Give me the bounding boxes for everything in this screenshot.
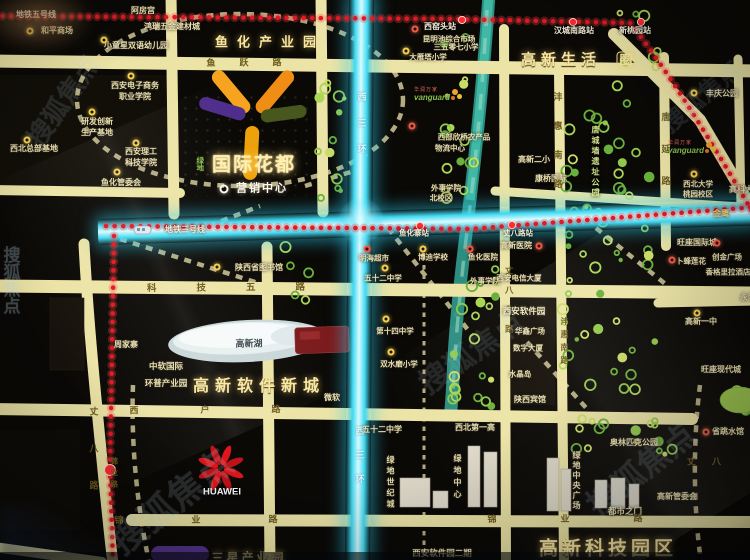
map-label: 省跳水馆: [712, 428, 744, 436]
map-label: 西北总部基地: [10, 145, 58, 153]
map-label: 永阳: [740, 294, 750, 302]
map-label: 物流中心: [435, 144, 465, 152]
board-bottom-edge: [0, 552, 750, 560]
poi-marker-red-icon: [714, 240, 721, 247]
poi-marker-yellow-icon: [388, 349, 395, 356]
marketing-center-ring-icon: [220, 185, 229, 194]
poi-marker-yellow-icon: [691, 90, 698, 97]
marketing-center-label: 营销中心: [236, 184, 288, 195]
poi-marker-red-icon: [412, 26, 419, 33]
map-label: 圈: [616, 52, 635, 69]
map-label: 高新一中: [685, 318, 717, 326]
vanguard-logo: 华润万家 vanguard: [414, 88, 450, 102]
poi-marker-yellow-icon: [694, 310, 701, 317]
poi-marker-yellow-icon: [128, 73, 135, 80]
poi-marker-red-icon: [364, 246, 371, 253]
poi-marker-yellow-icon: [382, 265, 389, 272]
map-label: 唐延路: [661, 112, 670, 208]
map-label: 丈八: [687, 458, 737, 467]
map-label: 新桃园站: [619, 27, 651, 35]
map-label: 高新二小: [518, 156, 550, 164]
map-label: 丰庆公园: [706, 90, 738, 98]
map-label: 三五零七小学: [434, 43, 479, 51]
vanguard-logo: 华润万家 vanguard: [668, 141, 704, 155]
poi-marker-yellow-icon: [383, 316, 390, 323]
vanguard-fruit-icon: [450, 89, 464, 103]
map-label: 西户路: [129, 405, 342, 416]
map-label: 微软: [324, 394, 340, 402]
vanguard-fruit-icon: [704, 142, 718, 156]
poi-marker-yellow-icon: [24, 137, 31, 144]
map-label: 桃园校区: [683, 190, 713, 198]
map-label: 香格里拉酒店: [706, 268, 750, 276]
map-label: 绿地中心: [453, 454, 461, 502]
logo-brand-greenland: 绿地: [196, 157, 204, 172]
map-label: 绿地中央广场: [572, 451, 580, 511]
map-label: 西安电子商务: [111, 82, 159, 90]
map-label: 西北大学: [683, 180, 713, 188]
map-label: 西北第一高: [455, 424, 495, 432]
map-label: 华鑫广场: [515, 327, 545, 335]
poi-marker-red-icon: [669, 257, 676, 264]
map-label: 奥林匹克公园: [610, 439, 658, 447]
map-label: 西部欣桥农产品: [438, 133, 491, 141]
map-label: 外事学院: [431, 184, 461, 192]
map-label: 锦业路: [487, 514, 706, 524]
map-label: 西安软件园: [503, 307, 546, 316]
lake-label: 高新湖: [235, 340, 262, 349]
map-label: 明海超市: [359, 254, 389, 262]
map-label: 周家寨: [114, 341, 138, 349]
poi-marker-red-icon: [467, 246, 474, 253]
map-label: 高新管委会: [657, 493, 697, 501]
poi-marker-yellow-icon: [101, 37, 108, 44]
map-label: 唐城墙遗址公园: [591, 125, 599, 199]
map-label: 环普产业园: [145, 379, 188, 388]
poi-marker-yellow-icon: [214, 264, 221, 271]
map-label: 创金广场: [712, 253, 742, 261]
map-label: 双水磨小学: [380, 360, 418, 368]
map-label: 鱼化管委会: [101, 179, 141, 187]
map-label: 水晶岛: [509, 370, 532, 378]
map-label: 西三环: [355, 426, 364, 498]
district-title-software-new-town: 高新软件新城: [193, 379, 325, 395]
map-label: 研发创新: [81, 118, 113, 126]
map-label: 高科大厦: [729, 186, 750, 194]
map-label: 高新医院: [500, 242, 532, 250]
map-label: 锦业路: [114, 515, 345, 525]
map-label: 数字大厦: [513, 344, 543, 352]
map-label: 鱼跃路: [206, 58, 305, 68]
poi-marker-yellow-icon: [691, 171, 698, 178]
poi-marker-yellow-icon: [89, 109, 96, 116]
map-label: 鱼化医院: [468, 253, 498, 261]
map-label: 金鹰: [713, 210, 729, 218]
map-label: 科技学院: [125, 159, 157, 167]
map-label: 旺座现代城: [701, 366, 741, 374]
map-label: 锦业路: [110, 457, 118, 492]
map-label: 第十四中学: [376, 327, 414, 335]
map-label: 汉城南路站: [554, 27, 594, 35]
map-label: 阿房宫: [131, 7, 155, 15]
map-label: 丈八路: [89, 407, 98, 518]
metro-line3-label: 地铁三号线: [165, 226, 205, 234]
poi-marker-red-icon: [536, 243, 543, 250]
map-label: 旺座国际城: [677, 239, 717, 247]
map-label: 生产基地: [81, 129, 113, 137]
photo-blur-corner: [0, 0, 88, 48]
map-label: 西三环: [357, 92, 366, 170]
map-label: 西窑头站: [424, 23, 456, 31]
district-title-yuhua-industrial-park: 鱼化产业园: [215, 36, 325, 49]
poi-marker-red-icon: [409, 123, 416, 130]
map-label: 鸿瑞五金建材城: [144, 23, 200, 31]
map-label: 沣惠南路: [553, 92, 562, 208]
vanguard-en-text: vanguard: [414, 94, 450, 102]
map-label: 五十二中学: [364, 274, 402, 282]
vanguard-en-text: vanguard: [668, 147, 704, 155]
map-label: 中软国际: [149, 362, 183, 371]
poi-marker-red-icon: [703, 429, 710, 436]
map-label: 鱼化寨站: [399, 229, 429, 237]
map-label: 丈八路站: [503, 229, 533, 237]
map-label: 绿地世纪城: [386, 456, 394, 511]
map-label: 卜蜂莲花: [676, 257, 706, 265]
poi-marker-yellow-icon: [420, 246, 427, 253]
map-label: 五十二中学: [362, 426, 402, 434]
map-labels: 地铁五号线阿房宫和平商场鸿瑞五金建材城小童星双语幼儿园西安电子商务职业学院研发创…: [0, 0, 750, 560]
illuminated-map-board: 地铁五号线阿房宫和平商场鸿瑞五金建材城小童星双语幼儿园西安电子商务职业学院研发创…: [0, 0, 750, 560]
map-label: 陕西宾馆: [514, 396, 546, 404]
map-label: 外事学院: [470, 277, 500, 285]
map-label: 西安理工: [125, 148, 157, 156]
map-label: 科技五路: [147, 282, 345, 293]
huawei-logo-text: HUAWEI: [203, 487, 241, 497]
map-label: 西安电信大厦: [497, 274, 542, 282]
map-label: 小童星双语幼儿园: [104, 42, 168, 50]
poi-marker-yellow-icon: [403, 48, 410, 55]
map-label: 大雁塔小学: [409, 53, 447, 61]
map-label: 沣惠南路: [560, 317, 568, 369]
map-label: 职业学院: [119, 93, 151, 101]
map-label: 陕西省图书馆: [235, 264, 283, 272]
poi-marker-yellow-icon: [133, 140, 140, 147]
poi-marker-yellow-icon: [114, 169, 121, 176]
district-title-gaoxin-life-circle: 高新生活: [521, 53, 601, 68]
map-label: 博迪学校: [418, 253, 448, 261]
map-label: 北校区: [430, 194, 453, 202]
project-logo-title: 国际花都: [212, 156, 296, 175]
